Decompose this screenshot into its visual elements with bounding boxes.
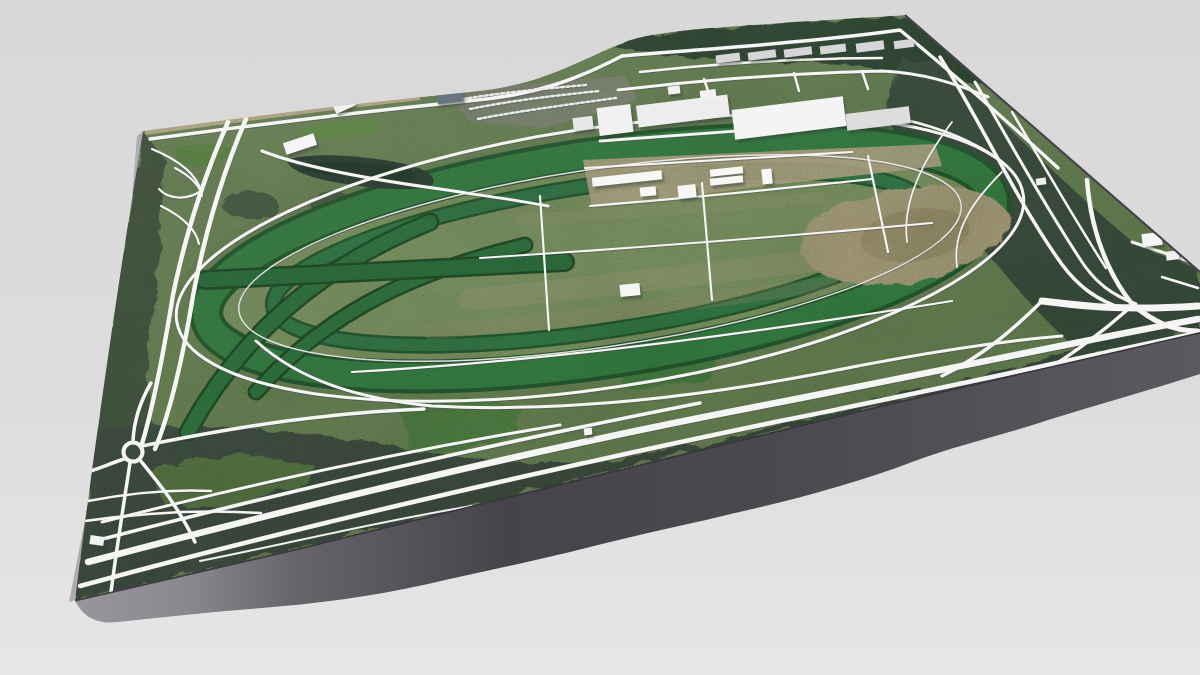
terrain-surface <box>0 0 1200 675</box>
3d-terrain-viewport[interactable] <box>0 0 1200 675</box>
sun-highlight-overlay <box>0 0 1200 675</box>
terrain-scene-canvas <box>0 0 1200 675</box>
